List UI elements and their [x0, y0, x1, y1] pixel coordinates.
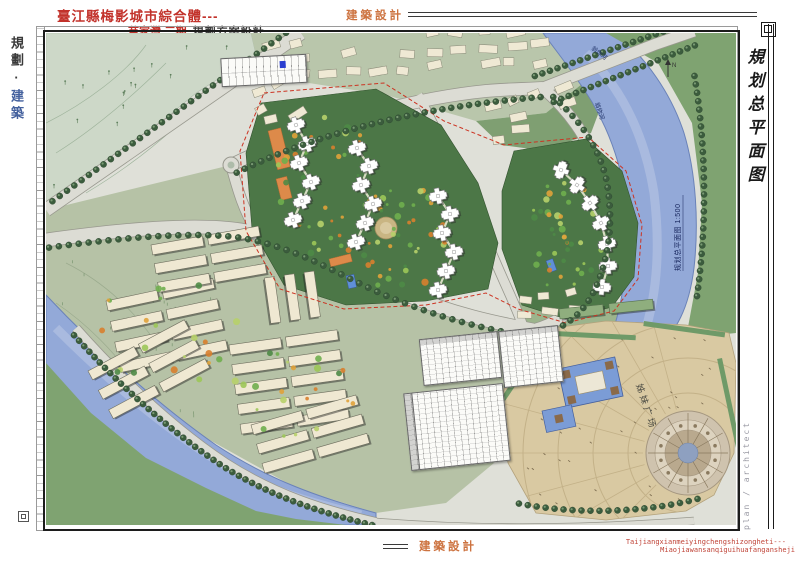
left-margin-label: 規劃·建築: [7, 36, 26, 123]
site-plan: 翁你河 翁你河 规划总平面图 1:500 姊妹广场 N: [46, 33, 736, 525]
left-label-dot: ·: [9, 70, 24, 89]
stamp-bottom: 建築設計: [419, 538, 477, 554]
legend-blue-cell: [280, 61, 286, 68]
bottom-rule: [383, 544, 408, 549]
drawing-sheet: 臺江縣梅影城市綜合體--- 苗家灣·三期規劃方案設計 建築設計 建築設計 規劃·…: [0, 0, 800, 565]
right-double-line: [768, 24, 774, 529]
plaza-rosette: [646, 411, 730, 495]
credit-line-1: Taijiangxianmeiyingchengshizongheti---: [626, 538, 786, 546]
corner-ornament: [18, 511, 29, 522]
stamp-top: 建築設計: [346, 7, 404, 23]
indicator-table: [498, 325, 564, 388]
left-label-planning: 規劃: [9, 36, 24, 70]
indicator-table: [403, 383, 511, 471]
plan-credit: plan / architect: [742, 415, 751, 530]
indicator-table: [419, 331, 502, 386]
credit-line-2: Miaojiawansanqiguihuafangansheji: [660, 546, 795, 554]
project-title: 臺江縣梅影城市綜合體---: [57, 5, 219, 25]
top-rule: [408, 12, 757, 17]
map-scale-label: 规划总平面图 1:500: [673, 204, 682, 271]
north-label: N: [672, 63, 676, 69]
drawing-title-vertical: 規划总平面图: [744, 48, 766, 189]
legend-strip: [220, 54, 307, 87]
left-label-architecture: 建築: [9, 89, 24, 123]
